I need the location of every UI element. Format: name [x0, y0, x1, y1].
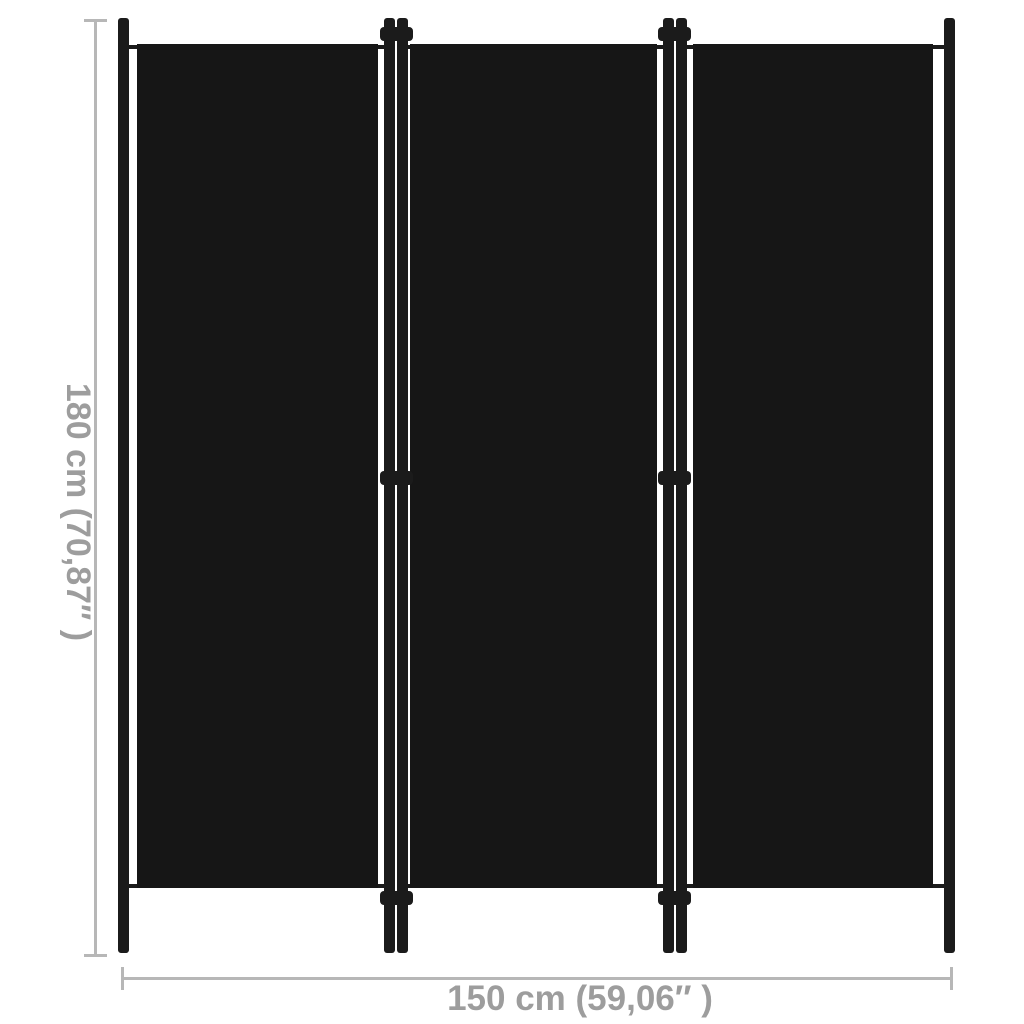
hinge-junction2-middle: [658, 471, 691, 485]
frame-pole-outer-left: [118, 18, 129, 953]
frame-pole-junction1-left: [384, 18, 395, 953]
hinge-junction2-top: [658, 27, 691, 41]
hinge-junction1-bottom: [380, 891, 413, 905]
frame-pole-junction2-right: [676, 18, 687, 953]
divider-panel-1: [137, 44, 378, 888]
room-divider-diagram: 180 cm (70,87″ ) 150 cm (59,06″ ): [0, 0, 1024, 1024]
hinge-junction1-top: [380, 27, 413, 41]
frame-pole-junction2-left: [663, 18, 674, 953]
frame-pole-outer-right: [944, 18, 955, 953]
frame-pole-junction1-right: [397, 18, 408, 953]
width-dimension-label: 150 cm (59,06″ ): [430, 981, 730, 1017]
divider-panel-2: [410, 44, 657, 888]
height-dimension-cap-bottom: [84, 954, 107, 957]
hinge-junction1-middle: [380, 471, 413, 485]
width-dimension-cap-right: [950, 967, 953, 990]
hinge-junction2-bottom: [658, 891, 691, 905]
height-dimension-label: 180 cm (70,87″ ): [58, 362, 98, 662]
divider-panel-3: [693, 44, 933, 888]
